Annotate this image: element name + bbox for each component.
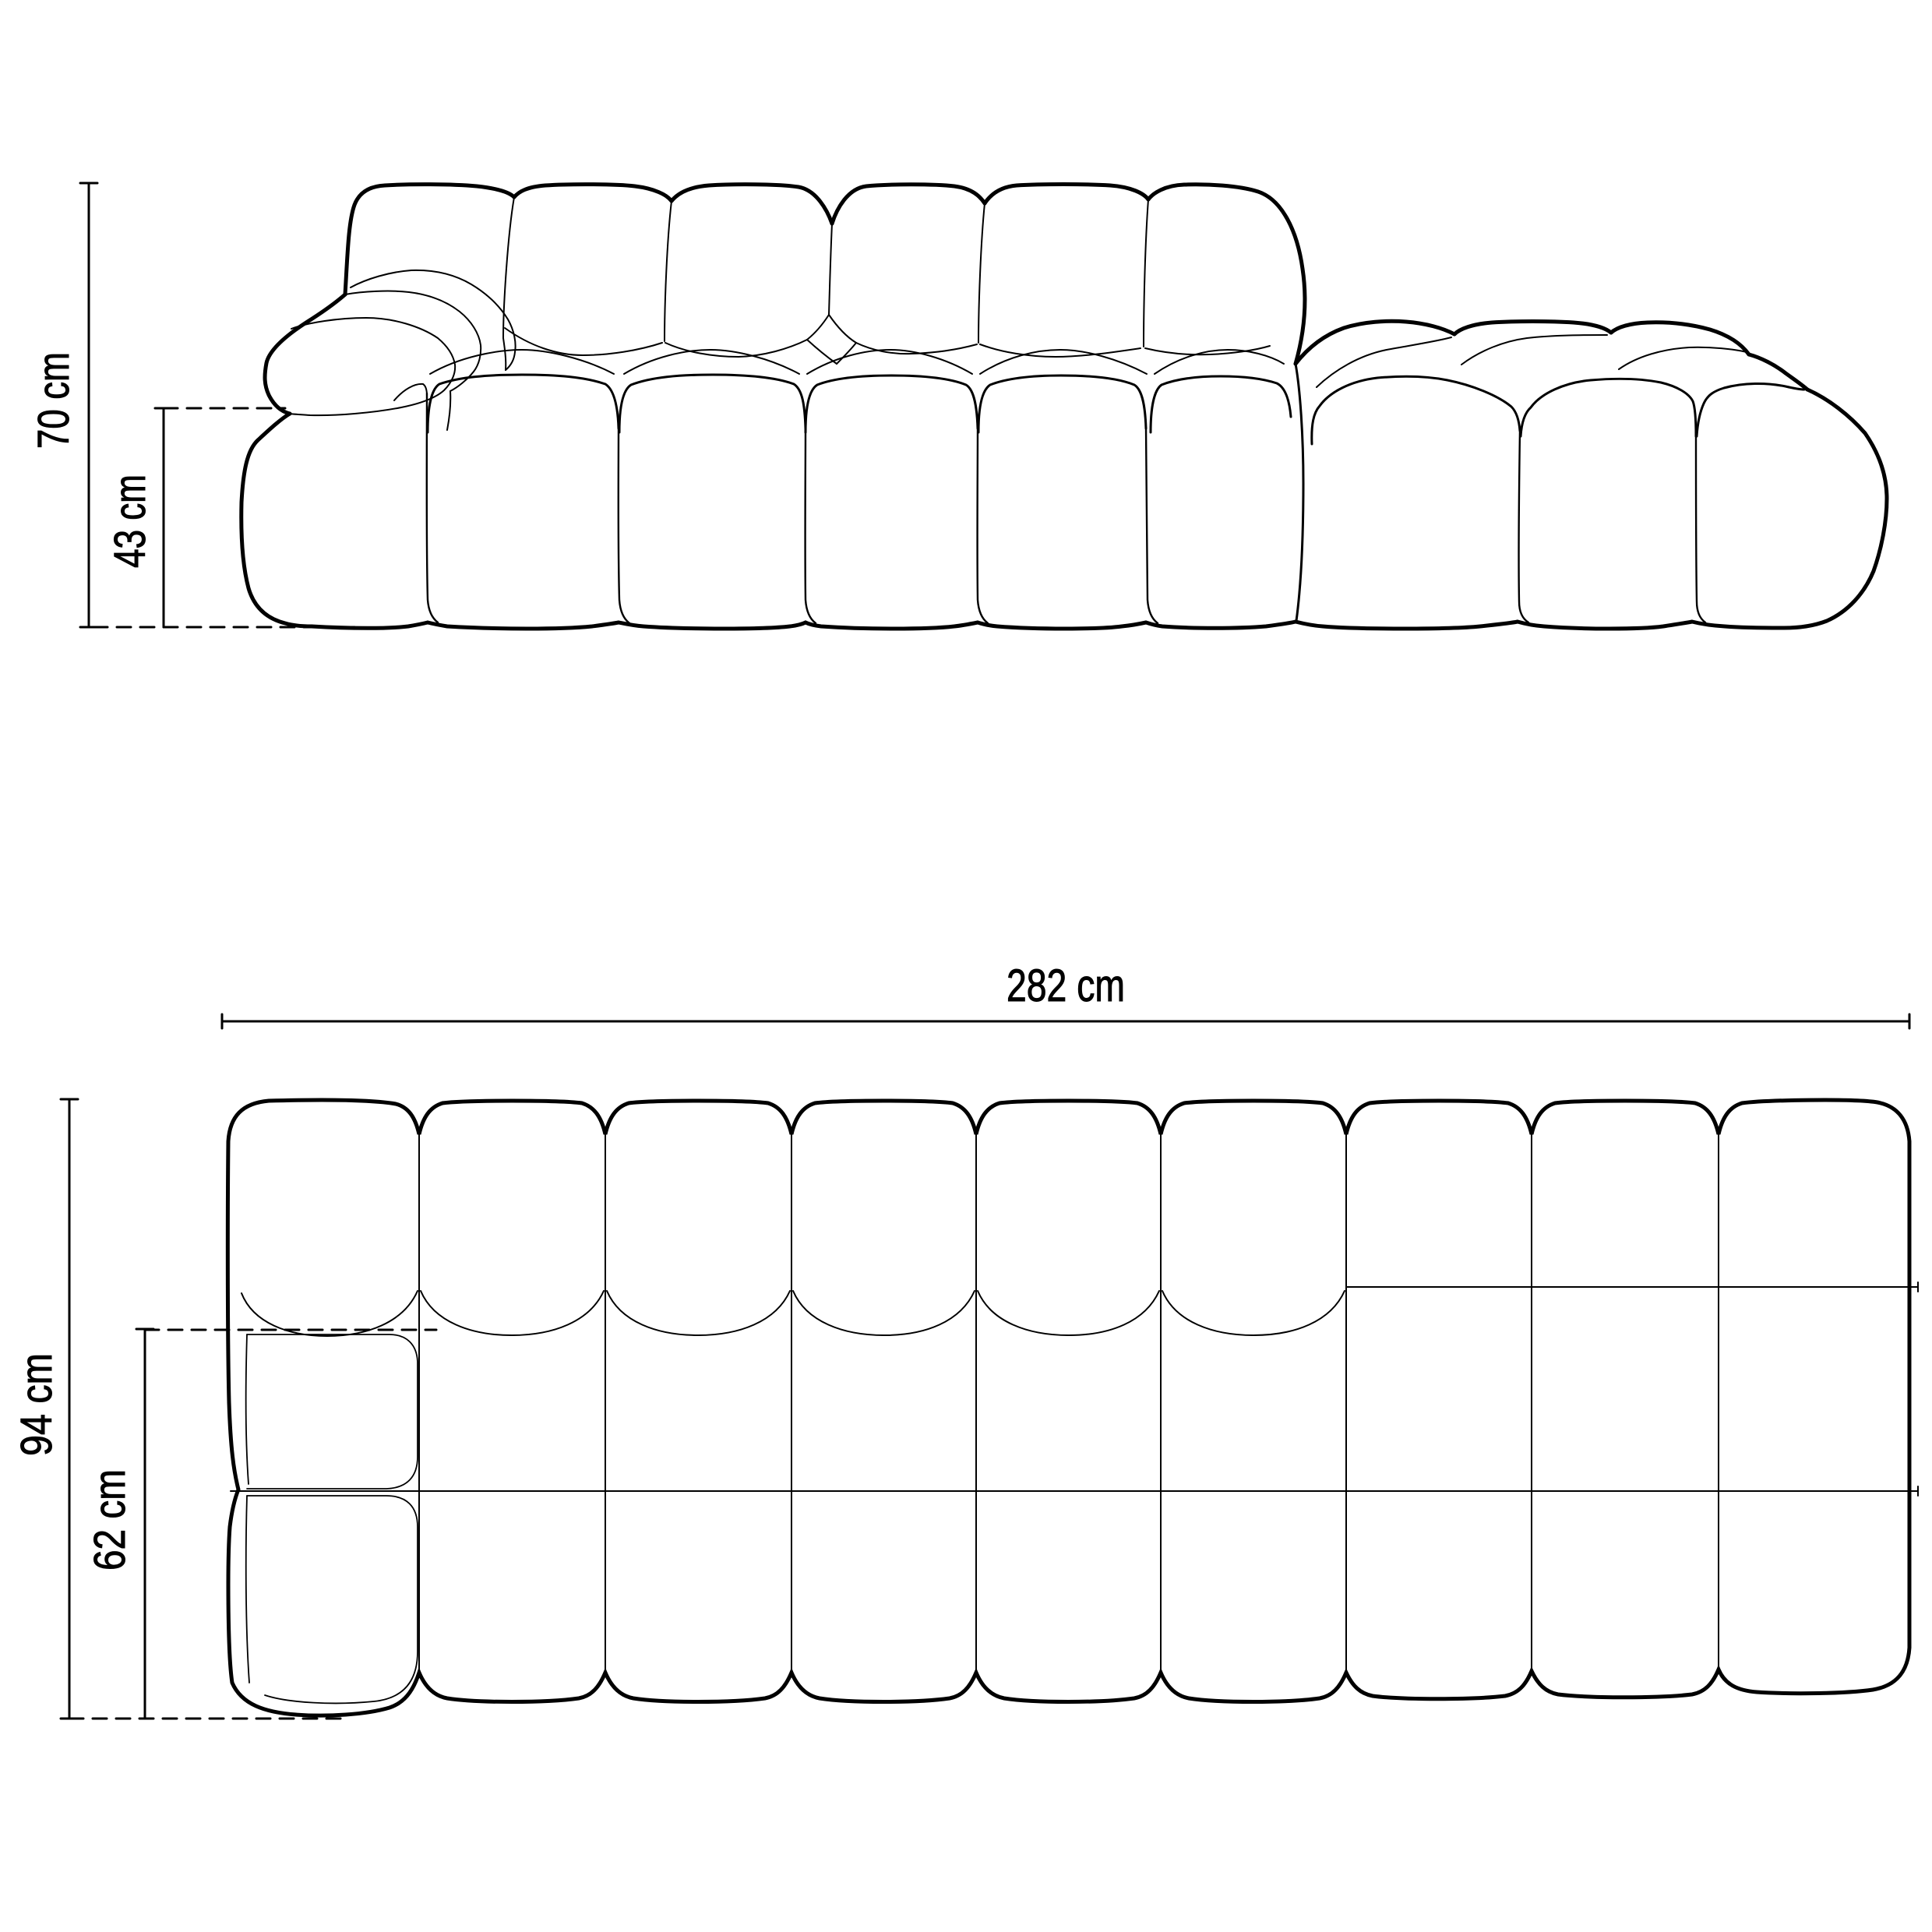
- svg-text:282 cm: 282 cm: [1007, 961, 1125, 1011]
- svg-text:70 cm: 70 cm: [29, 352, 79, 449]
- svg-text:43 cm: 43 cm: [105, 474, 155, 568]
- svg-text:62 cm: 62 cm: [85, 1469, 135, 1571]
- svg-text:94 cm: 94 cm: [12, 1353, 62, 1456]
